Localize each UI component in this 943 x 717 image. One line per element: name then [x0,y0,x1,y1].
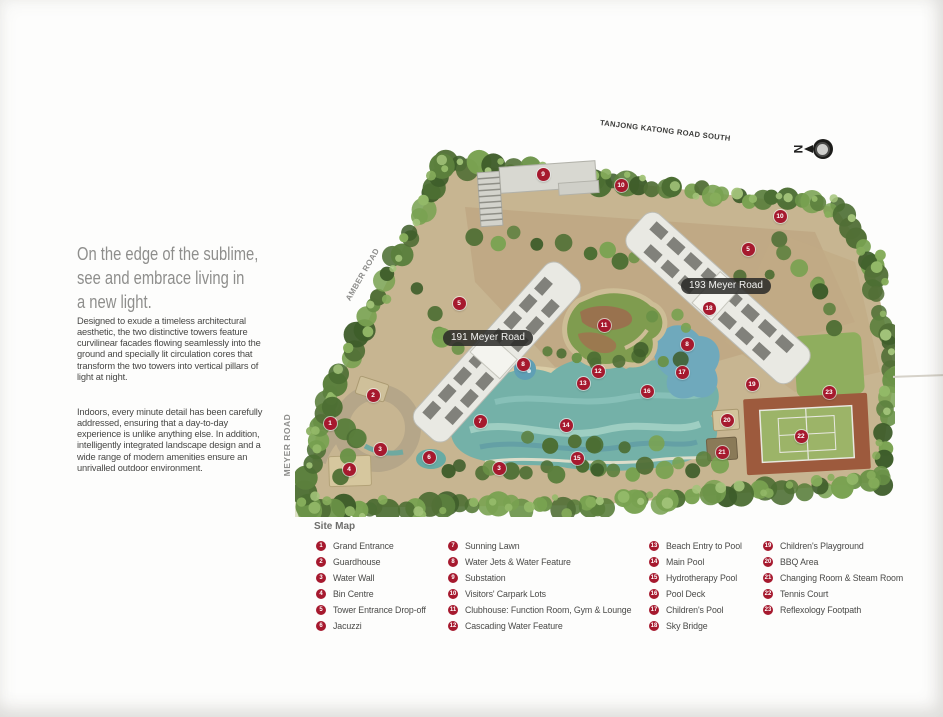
map-marker-6: 6 [423,451,436,464]
legend-number-badge: 7 [448,541,458,551]
legend-label: Beach Entry to Pool [666,541,742,551]
legend-item-6: 6Jacuzzi [316,618,426,634]
legend-number-badge: 19 [763,541,773,551]
building-label-193: 193 Meyer Road [681,278,771,294]
map-marker-8: 8 [517,358,530,371]
map-marker-18: 18 [703,302,716,315]
legend-number-badge: 2 [316,557,326,567]
legend-number-badge: 15 [649,573,659,583]
legend-item-18: 18Sky Bridge [649,618,742,634]
legend-label: Water Jets & Water Feature [465,557,571,567]
legend-number-badge: 13 [649,541,659,551]
legend-label: Cascading Water Feature [465,621,563,631]
legend-label: Hydrotherapy Pool [666,573,737,583]
legend-number-badge: 5 [316,605,326,615]
legend-number-badge: 11 [448,605,458,615]
legend-item-5: 5Tower Entrance Drop-off [316,602,426,618]
map-marker-3: 3 [374,443,387,456]
headline-line-2: see and embrace living in [77,266,241,290]
legend-item-15: 15Hydrotherapy Pool [649,570,742,586]
legend-item-19: 19Children's Playground [763,538,903,554]
map-marker-23: 23 [823,386,836,399]
legend-item-14: 14Main Pool [649,554,742,570]
legend-number-badge: 1 [316,541,326,551]
legend-label: BBQ Area [780,557,818,567]
legend-item-22: 22Tennis Court [763,586,903,602]
legend-label: Guardhouse [333,557,380,567]
legend-number-badge: 8 [448,557,458,567]
map-marker-3: 3 [493,462,506,475]
map-marker-1: 1 [324,417,337,430]
legend-column-4: 19Children's Playground20BBQ Area21Chang… [763,538,903,618]
legend-label: Tennis Court [780,589,828,599]
legend-label: Grand Entrance [333,541,394,551]
legend-item-20: 20BBQ Area [763,554,903,570]
map-marker-8: 8 [681,338,694,351]
map-marker-13: 13 [577,377,590,390]
legend-item-16: 16Pool Deck [649,586,742,602]
brochure-page: On the edge of the sublime, see and embr… [0,0,943,717]
map-marker-7: 7 [474,415,487,428]
legend-number-badge: 4 [316,589,326,599]
legend-item-21: 21Changing Room & Steam Room [763,570,903,586]
legend-label: Children's Playground [780,541,864,551]
site-map-svg [295,112,895,517]
legend-item-12: 12Cascading Water Feature [448,618,631,634]
intro-paragraph-2: Indoors, every minute detail has been ca… [77,407,263,474]
road-label-meyer: MEYER ROAD [282,410,292,480]
map-marker-21: 21 [716,446,729,459]
legend-number-badge: 21 [763,573,773,583]
map-marker-5: 5 [742,243,755,256]
legend-label: Visitors' Carpark Lots [465,589,546,599]
legend-column-2: 7Sunning Lawn8Water Jets & Water Feature… [448,538,631,634]
map-marker-17: 17 [676,366,689,379]
legend-label: Bin Centre [333,589,374,599]
intro-paragraph-1: Designed to exude a timeless architectur… [77,316,263,383]
legend-item-3: 3Water Wall [316,570,426,586]
map-marker-2: 2 [367,389,380,402]
compass-n-label: N [791,145,805,154]
building-label-191: 191 Meyer Road [443,330,533,346]
legend-item-1: 1Grand Entrance [316,538,426,554]
legend-number-badge: 6 [316,621,326,631]
legend-number-badge: 14 [649,557,659,567]
legend-item-4: 4Bin Centre [316,586,426,602]
legend-item-13: 13Beach Entry to Pool [649,538,742,554]
map-marker-20: 20 [721,414,734,427]
legend-item-8: 8Water Jets & Water Feature [448,554,631,570]
headline-line-3: a new light. [77,290,241,314]
map-marker-4: 4 [343,463,356,476]
legend-number-badge: 18 [649,621,659,631]
legend-number-badge: 20 [763,557,773,567]
legend-title: Site Map [314,521,355,532]
legend-number-badge: 22 [763,589,773,599]
legend-label: Water Wall [333,573,374,583]
map-marker-15: 15 [571,452,584,465]
map-marker-19: 19 [746,378,759,391]
map-marker-10: 10 [774,210,787,223]
legend-label: Changing Room & Steam Room [780,573,903,583]
legend-item-7: 7Sunning Lawn [448,538,631,554]
legend-item-10: 10Visitors' Carpark Lots [448,586,631,602]
legend-number-badge: 17 [649,605,659,615]
map-marker-9: 9 [537,168,550,181]
map-marker-5: 5 [453,297,466,310]
headline: On the edge of the sublime, see and embr… [77,242,241,314]
legend-number-badge: 10 [448,589,458,599]
legend-item-17: 17Children's Pool [649,602,742,618]
legend-label: Main Pool [666,557,704,567]
legend-label: Children's Pool [666,605,723,615]
intro-text-block: On the edge of the sublime, see and embr… [77,242,277,314]
substation-stairs [477,171,503,226]
legend-item-9: 9Substation [448,570,631,586]
map-marker-12: 12 [592,365,605,378]
headline-line-1: On the edge of the sublime, [77,242,241,266]
map-marker-11: 11 [598,319,611,332]
jet-dot [527,369,531,373]
legend-label: Reflexology Footpath [780,605,861,615]
map-marker-22: 22 [795,430,808,443]
map-marker-14: 14 [560,419,573,432]
legend-number-badge: 23 [763,605,773,615]
legend-label: Sky Bridge [666,621,708,631]
compass-circle [813,139,833,159]
legend-label: Pool Deck [666,589,705,599]
legend-number-badge: 12 [448,621,458,631]
legend-label: Jacuzzi [333,621,362,631]
compass-north-indicator: N [794,139,833,159]
map-marker-16: 16 [641,385,654,398]
map-marker-10: 10 [615,179,628,192]
site-map-illustration: 191 Meyer Road 193 Meyer Road 1233455678… [295,112,895,517]
page-fold-line [893,374,943,377]
legend-column-3: 13Beach Entry to Pool14Main Pool15Hydrot… [649,538,742,634]
legend-item-2: 2Guardhouse [316,554,426,570]
legend-column-1: 1Grand Entrance2Guardhouse3Water Wall4Bi… [316,538,426,634]
legend-label: Clubhouse: Function Room, Gym & Lounge [465,605,631,615]
legend-item-11: 11Clubhouse: Function Room, Gym & Lounge [448,602,631,618]
legend-label: Substation [465,573,506,583]
legend-number-badge: 3 [316,573,326,583]
legend-label: Tower Entrance Drop-off [333,605,426,615]
legend-number-badge: 16 [649,589,659,599]
legend-number-badge: 9 [448,573,458,583]
legend-label: Sunning Lawn [465,541,520,551]
legend-item-23: 23Reflexology Footpath [763,602,903,618]
